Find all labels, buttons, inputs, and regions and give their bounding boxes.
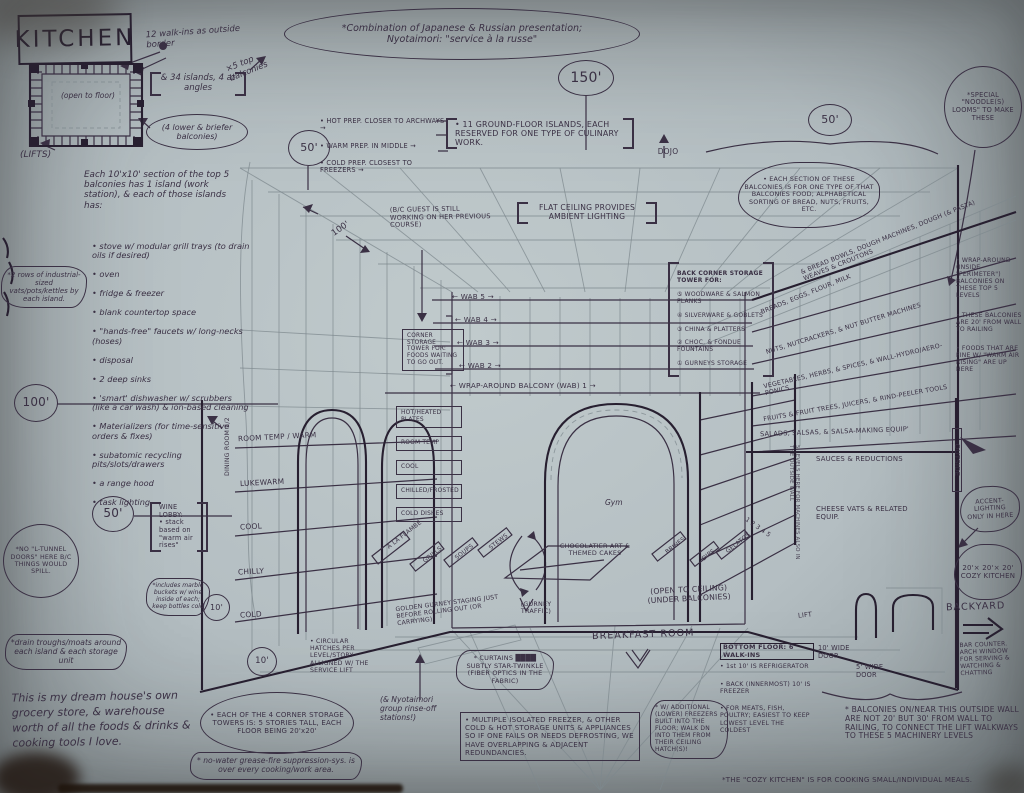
prep-zones-list: • HOT PREP. CLOSER TO ARCHWAYS → • WARM … — [320, 110, 448, 183]
equipment-item: • "hands-free" faucets w/ long-necks (ho… — [92, 327, 250, 346]
corner-towers-note: • EACH OF THE 4 CORNER STORAGE TOWERS IS… — [200, 692, 354, 754]
plate-stack-cell: ROOM TEMP — [396, 436, 462, 451]
prep-item: • COLD PREP. CLOSEST TO FREEZERS → — [320, 160, 448, 175]
plate-stack-cell: HOT/HEATED PLATES — [396, 406, 462, 428]
wine-lobby-note: WINE LOBBY: • stack based on "warm air r… — [150, 502, 208, 552]
plan-lower-balconies-note: (4 lower & briefer balconies) — [146, 114, 248, 150]
plate-stack-cell: CHILLED/FROSTED — [396, 484, 462, 499]
bottom-floor-note: BOTTOM FLOOR: 6 WALK-INS • 1st 10' IS RE… — [720, 636, 814, 741]
wab4-label: ← WAB 4 → — [455, 316, 535, 324]
title-text: KITCHEN — [14, 25, 135, 54]
curtains-note: * CURTAINS ████ SUBTLY STAR-TWINKLE (FIB… — [456, 650, 554, 690]
corner-tower-front-note: CORNER STORAGE TOWER FOR: FOODS WAITING … — [402, 329, 464, 371]
gurney-traffic-label: (GURNEY TRAFFIC) — [506, 601, 566, 616]
flat-ceiling-note: FLAT CEILING PROVIDES AMBIENT LIGHTING — [517, 202, 657, 224]
prep-item: • WARM PREP. IN MIDDLE → — [320, 143, 448, 151]
wab1-label: ← WRAP-AROUND BALCONY (WAB) 1 → — [450, 382, 630, 390]
dream-house-note: This is my dream house's own grocery sto… — [11, 688, 198, 751]
outside-wall-balconies-note: * BALCONIES ON/NEAR THIS OUTSIDE WALL AR… — [845, 706, 1024, 741]
equipment-item: • blank countertop space — [92, 308, 250, 318]
dim-50-left: 50' — [92, 496, 134, 532]
tower-item: ④ SILVERWARE & GOBLETS — [677, 313, 765, 320]
dim-10-lobby: 10' — [203, 594, 230, 621]
dining-room-label: DINING ROOM 2/2 — [224, 394, 231, 476]
dim-100-left: 100' — [14, 384, 58, 422]
prep-item: • HOT PREP. CLOSER TO ARCHWAYS → — [320, 118, 448, 133]
wraparound-item: • WRAP-AROUND (INSIDE "PERIMETER") BALCO… — [956, 257, 1022, 299]
equipment-item: • a range hood — [92, 479, 250, 489]
equipment-item: • oven — [92, 270, 250, 280]
plan-lifts-label: (LIFTS) — [20, 150, 80, 160]
bottom-floor-item: • BACK (INNERMOST) 10' IS FREEZER — [720, 681, 814, 695]
wraparound-item: • THESE BALCONIES ARE 20' FROM WALL TO R… — [956, 312, 1022, 333]
equipment-item: • fridge & freezer — [92, 289, 250, 299]
wine-marble-note: *includes marble buckets w/ wine inside … — [146, 578, 210, 616]
wab3-label: ← WAB 3 → — [457, 339, 537, 347]
plate-temperature-stack: HOT/HEATED PLATES ROOM TEMP COOL CHILLED… — [396, 399, 462, 529]
wraparound-balcony-notes: • WRAP-AROUND (INSIDE "PERIMETER") BALCO… — [956, 250, 1022, 380]
grease-fire-note: * no-water grease-fire suppression-sys. … — [190, 752, 362, 780]
wab2-label: ← WAB 2 → — [459, 362, 539, 370]
dojo-label: DOJO — [648, 148, 688, 157]
plate-stack-cell: COOL — [396, 460, 462, 475]
noodle-looms-bubble: *SPECIAL "NOODLE(S) LOOMS" TO MAKE THESE — [944, 66, 1022, 148]
cozy-kitchen-dims: 20'× 20'× 20' COZY KITCHEN — [954, 544, 1022, 600]
door-10-label: 10' WIDE DOOR — [818, 645, 860, 660]
circular-hatches-note: • CIRCULAR HATCHES PER LEVEL/STORY ALLIG… — [310, 638, 378, 674]
freezer-redundancy-note: • MULTIPLE ISOLATED FREEZER, & OTHER COL… — [460, 712, 640, 761]
drain-troughs-note: *drain troughs/moats around each island … — [5, 634, 127, 670]
tower-item: ⑤ WOODWARE & SALMON PLANKS — [677, 292, 765, 306]
cozy-kitchen-footnote: *THE "COZY KITCHEN" IS FOR COOKING SMALL… — [722, 776, 1024, 784]
eleven-islands-rule: • 11 GROUND-FLOOR ISLANDS, EACH RESERVED… — [446, 118, 634, 149]
vats-note: *2 rows of industrial-sized vats/pots/ke… — [1, 266, 87, 308]
page-title: KITCHEN — [18, 13, 133, 65]
guest-note: (B/C GUEST IS STILL WORKING ON HER PREVI… — [390, 205, 494, 230]
wraparound-item: • FOODS THAT ARE FINE W/ "WARM AIR RISIN… — [956, 345, 1022, 373]
bottom-floor-item: • FOR MEATS, FISH, POULTRY; EASIEST TO K… — [720, 705, 814, 734]
tower-header: BACK CORNER STORAGE TOWER FOR: — [677, 271, 765, 285]
outside-label: OUTSIDE — [952, 428, 962, 492]
shelf-cheese-label: CHEESE VATS & RELATED EQUIP. — [816, 505, 928, 521]
tower-item: ③ CHINA & PLATTERS — [677, 327, 765, 334]
island-equipment-intro: Each 10'x10' section of the top 5 balcon… — [84, 170, 242, 211]
wab5-label: ← WAB 5 → — [452, 293, 532, 301]
tower-item: ① GURNEYS STORAGE — [677, 361, 765, 368]
dim-150: 150' — [558, 60, 614, 96]
back-corner-tower-list: BACK CORNER STORAGE TOWER FOR: ⑤ WOODWAR… — [668, 262, 774, 377]
bar-counter-note: BAR COUNTER. ARCH WINDOW FOR SERVING & W… — [959, 641, 1022, 678]
dim-50-right: 50' — [808, 104, 852, 136]
door-5-label: 5' WIDE DOOR — [856, 664, 892, 679]
balcony-section-note: • EACH SECTION OF THESE BALCONIES IS FOR… — [738, 162, 880, 228]
bottom-floor-header: BOTTOM FLOOR: 6 WALK-INS — [720, 643, 814, 660]
equipment-item: • disposal — [92, 356, 250, 366]
equipment-item: • 2 deep sinks — [92, 375, 250, 385]
sketch-canvas: KITCHEN (open to floor) (LIFTS) 12 walk-… — [0, 0, 1024, 793]
chocolatier-island-label: CHOCOLATIER ART & THEMED CAKES — [550, 543, 640, 558]
plan-open-to-floor-label: (open to floor) — [56, 92, 120, 101]
lower-freezers-note: * W/ ADDITIONAL (LOWER) FREEZERS BUILT I… — [650, 700, 728, 759]
equipment-item: • stove w/ modular grill trays (to drain… — [92, 242, 250, 261]
no-tunnel-note: *NO "L-TUNNEL DOORS" HERE B/C THINGS WOU… — [3, 524, 79, 598]
rinse-stations-note: (& Nyotaimori group rinse-off stations!) — [380, 696, 452, 722]
bottom-floor-item: • 1st 10' IS REFRIGERATOR — [720, 663, 814, 670]
dim-10-floor: 10' — [247, 647, 277, 676]
tower-item: ② CHOC. & FONDUE FOUNTAINS — [677, 340, 765, 354]
shelf-sauces-label: SAUCES & REDUCTIONS — [816, 455, 908, 463]
presentation-style-bubble: *Combination of Japanese & Russian prese… — [284, 8, 640, 60]
gym-label: Gym — [605, 499, 641, 508]
